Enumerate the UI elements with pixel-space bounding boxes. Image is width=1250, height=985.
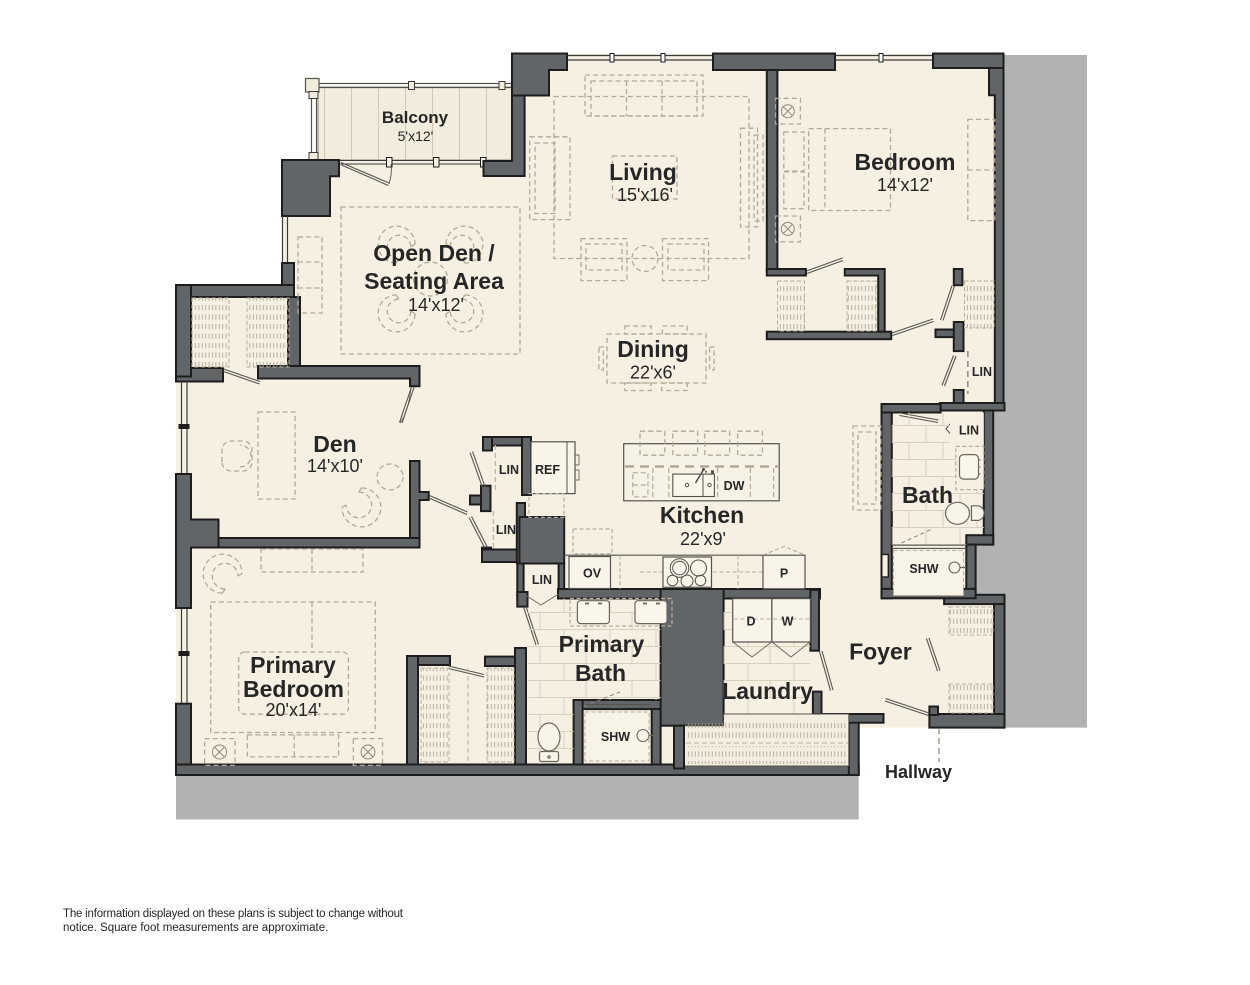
svg-text:LIN: LIN: [499, 463, 519, 477]
svg-text:Seating Area: Seating Area: [364, 268, 504, 294]
svg-text:LIN: LIN: [496, 523, 516, 537]
svg-text:notice. Square foot measuremen: notice. Square foot measurements are app…: [63, 922, 328, 934]
svg-text:SHW: SHW: [909, 562, 938, 576]
svg-text:Bath: Bath: [902, 482, 953, 508]
svg-text:LIN: LIN: [959, 424, 979, 438]
svg-text:Kitchen: Kitchen: [660, 502, 744, 528]
svg-text:Living: Living: [609, 159, 677, 185]
svg-text:Dining: Dining: [617, 336, 689, 362]
svg-text:P: P: [780, 567, 788, 581]
svg-text:DW: DW: [724, 479, 745, 493]
svg-text:LIN: LIN: [972, 365, 992, 379]
svg-text:Bedroom: Bedroom: [855, 149, 956, 175]
svg-text:LIN: LIN: [532, 573, 552, 587]
svg-text:14'x12': 14'x12': [408, 295, 464, 315]
svg-text:Foyer: Foyer: [849, 639, 912, 665]
svg-text:22'x6': 22'x6': [630, 363, 676, 383]
svg-text:REF: REF: [535, 463, 560, 477]
svg-text:W: W: [782, 615, 794, 629]
svg-text:Bedroom: Bedroom: [243, 676, 344, 702]
svg-text:Primary: Primary: [250, 652, 336, 678]
svg-text:22'x9': 22'x9': [680, 529, 726, 549]
svg-text:5'x12': 5'x12': [398, 128, 434, 144]
svg-text:Bath: Bath: [575, 660, 626, 686]
svg-text:Open Den /: Open Den /: [373, 240, 495, 266]
svg-text:SHW: SHW: [601, 730, 630, 744]
svg-text:14'x10': 14'x10': [307, 456, 363, 476]
svg-text:Hallway: Hallway: [885, 762, 952, 782]
svg-text:14'x12': 14'x12': [877, 175, 933, 195]
svg-text:Den: Den: [313, 431, 356, 457]
svg-text:15'x16': 15'x16': [617, 185, 673, 205]
svg-text:D: D: [746, 615, 755, 629]
svg-text:Primary: Primary: [559, 631, 645, 657]
svg-text:Balcony: Balcony: [382, 108, 449, 127]
svg-text:The information displayed on t: The information displayed on these plans…: [63, 908, 404, 920]
svg-text:20'x14': 20'x14': [266, 700, 322, 720]
svg-text:OV: OV: [583, 567, 602, 581]
svg-text:Laundry: Laundry: [722, 678, 813, 704]
